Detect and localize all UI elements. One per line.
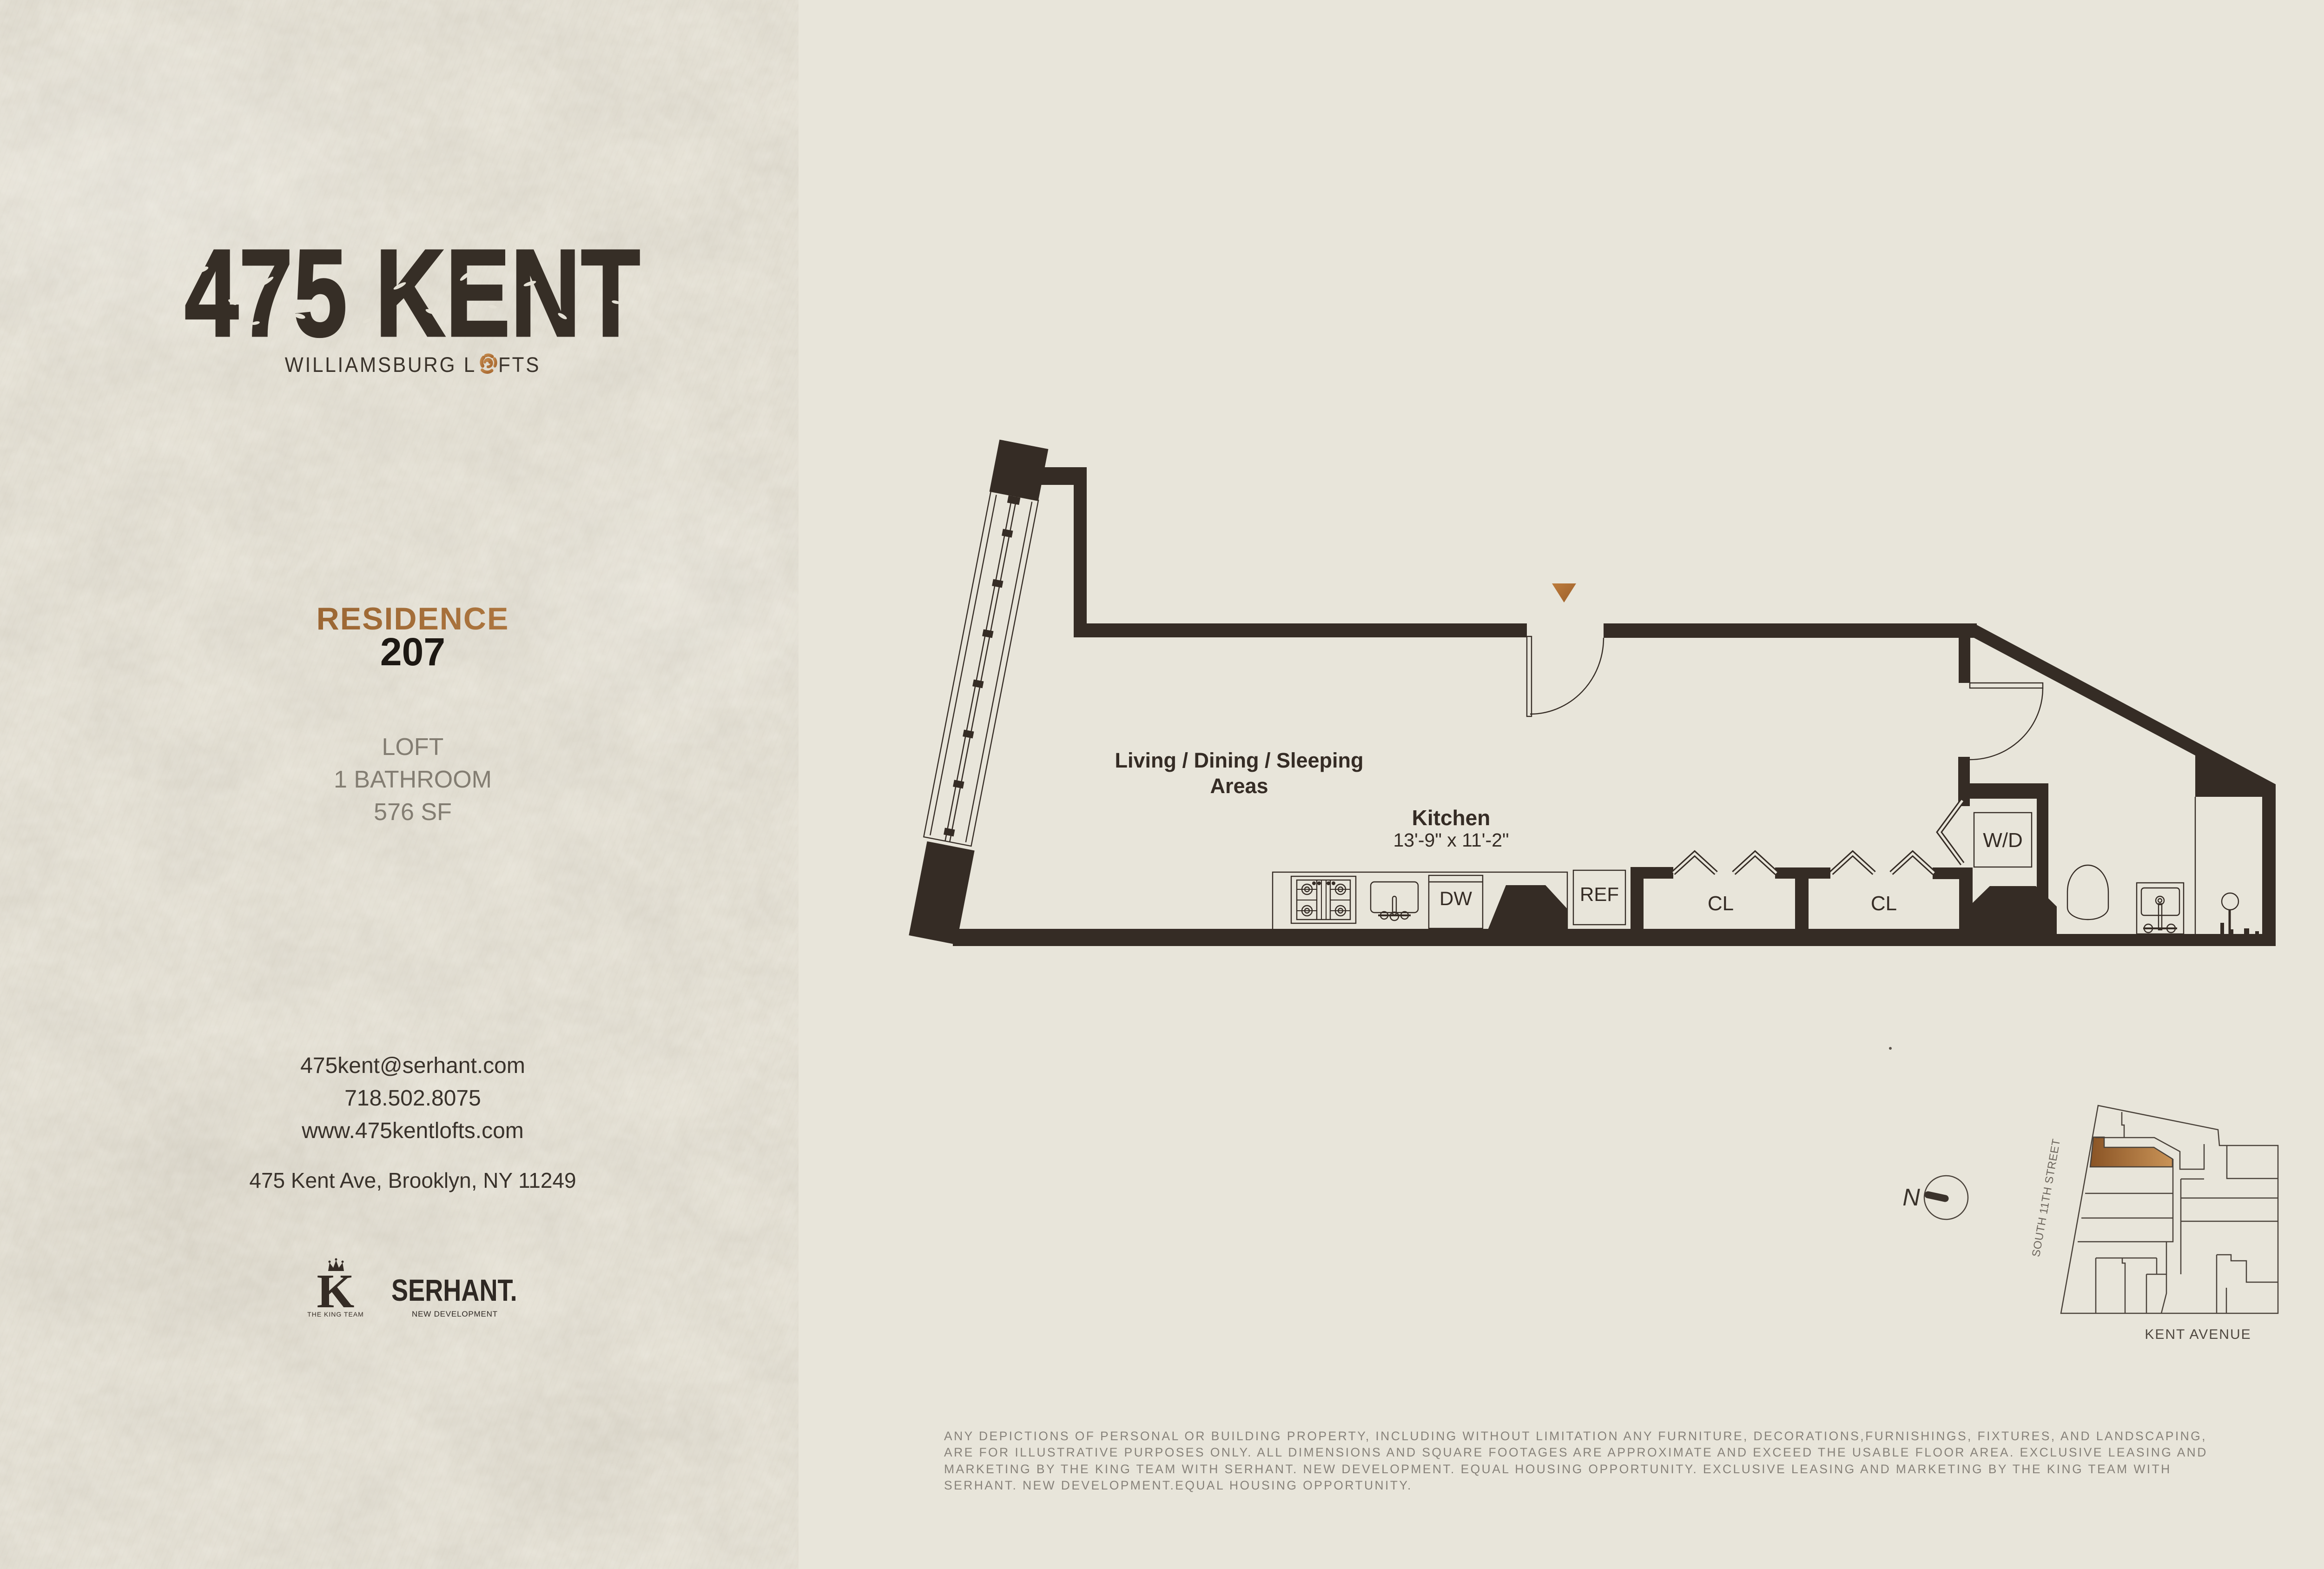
svg-text:CL: CL bbox=[1708, 892, 1734, 915]
svg-text:Kitchen: Kitchen bbox=[1412, 806, 1491, 830]
svg-text:SOUTH 11TH STREET: SOUTH 11TH STREET bbox=[2030, 1138, 2063, 1258]
svg-text:DW: DW bbox=[1439, 887, 1472, 909]
svg-text:N: N bbox=[1902, 1184, 1920, 1211]
svg-text:13'-9" x 11'-2": 13'-9" x 11'-2" bbox=[1393, 829, 1509, 851]
svg-text:CL: CL bbox=[1871, 892, 1897, 915]
svg-text:REF: REF bbox=[1580, 883, 1619, 905]
svg-text:KENT AVENUE: KENT AVENUE bbox=[2145, 1327, 2251, 1342]
svg-text:ANY DEPICTIONS OF PERSONAL OR: ANY DEPICTIONS OF PERSONAL OR BUILDING P… bbox=[944, 1429, 2207, 1443]
svg-text:W/D: W/D bbox=[1983, 829, 2023, 852]
svg-text:THE KING TEAM: THE KING TEAM bbox=[307, 1311, 364, 1318]
svg-text:ARE FOR ILLUSTRATIVE PURPOSES: ARE FOR ILLUSTRATIVE PURPOSES ONLY. ALL … bbox=[944, 1445, 2208, 1459]
svg-text:K: K bbox=[317, 1264, 355, 1318]
svg-text:Areas: Areas bbox=[1210, 774, 1268, 798]
svg-text:SERHANT. NEW DEVELOPMENT.EQUAL: SERHANT. NEW DEVELOPMENT.EQUAL HOUSING O… bbox=[944, 1478, 1413, 1492]
svg-text:MARKETING BY THE KING TEAM WIT: MARKETING BY THE KING TEAM WITH SERHANT.… bbox=[944, 1462, 2172, 1476]
svg-text:Living / Dining / Sleeping: Living / Dining / Sleeping bbox=[1115, 748, 1363, 772]
